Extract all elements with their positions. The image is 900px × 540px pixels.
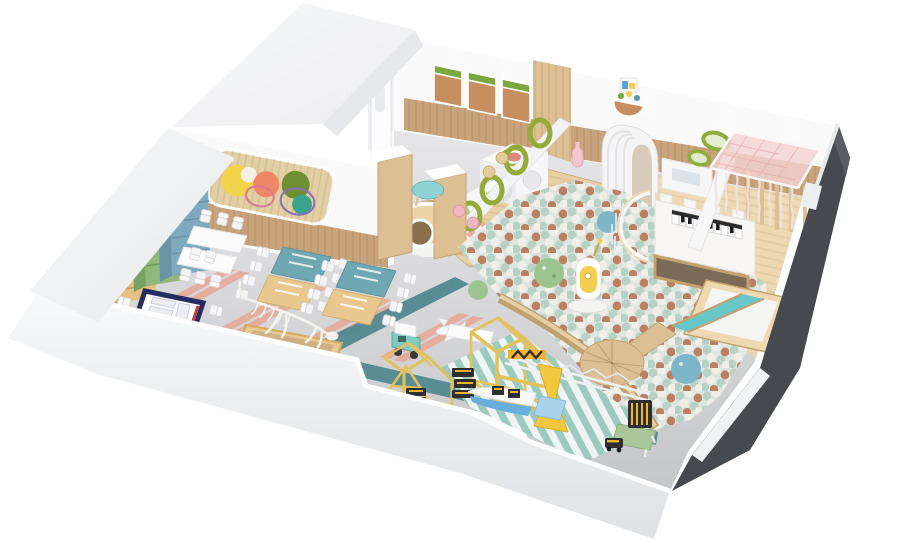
chair: [389, 300, 403, 312]
duck-base-disc: [568, 299, 608, 313]
chair: [209, 274, 221, 288]
cork-board: [434, 65, 462, 107]
cork-board: [468, 72, 496, 115]
chair: [199, 209, 211, 223]
boat-cargo: [508, 389, 520, 398]
ball-dot: [552, 274, 556, 278]
car-window: [398, 336, 406, 342]
stool-pink: [453, 205, 465, 217]
chair: [382, 314, 396, 326]
boat-cargo: [492, 386, 504, 395]
bottle-neck: [576, 142, 580, 149]
render-stage: [0, 0, 900, 540]
chair: [179, 268, 191, 282]
chair: [216, 212, 228, 226]
chair: [396, 286, 410, 298]
chair: [314, 274, 328, 286]
chair: [209, 304, 223, 316]
shelf-toy: [626, 91, 632, 97]
boat-cargo-stripe: [510, 391, 518, 393]
chair: [204, 250, 216, 264]
chair: [189, 247, 201, 261]
duck-eye: [585, 273, 591, 279]
shelf-toy: [634, 95, 640, 101]
ball-dot: [679, 362, 683, 366]
playcenter-isometric-render: [0, 0, 900, 540]
chair: [256, 246, 270, 258]
textured-ball-green: [534, 258, 564, 288]
chair: [307, 288, 321, 300]
shelf-toy: [618, 93, 624, 99]
chair: [321, 260, 335, 272]
dino-skull: [326, 332, 339, 341]
cube-side-hole: [523, 171, 541, 189]
chair: [403, 272, 417, 284]
duck-antenna-tip: [598, 239, 603, 244]
picture-art-blue: [622, 81, 628, 89]
textured-ball-blue: [671, 354, 701, 384]
stool-wood: [483, 166, 495, 178]
stool-pink: [467, 217, 479, 229]
chair: [194, 271, 206, 285]
cork-board: [502, 79, 530, 123]
tool-rack: [628, 400, 652, 428]
chair: [231, 216, 243, 230]
picture-art-yellow: [629, 83, 635, 89]
textured-ball-green: [468, 280, 488, 300]
chair: [249, 260, 263, 272]
boat-cargo-stripe: [494, 388, 502, 390]
ball-dot: [542, 266, 546, 270]
stool-wood: [496, 152, 508, 164]
duck-front: [580, 266, 597, 293]
chair: [300, 302, 314, 314]
chair: [242, 274, 256, 286]
blue-container-box: [534, 396, 566, 420]
